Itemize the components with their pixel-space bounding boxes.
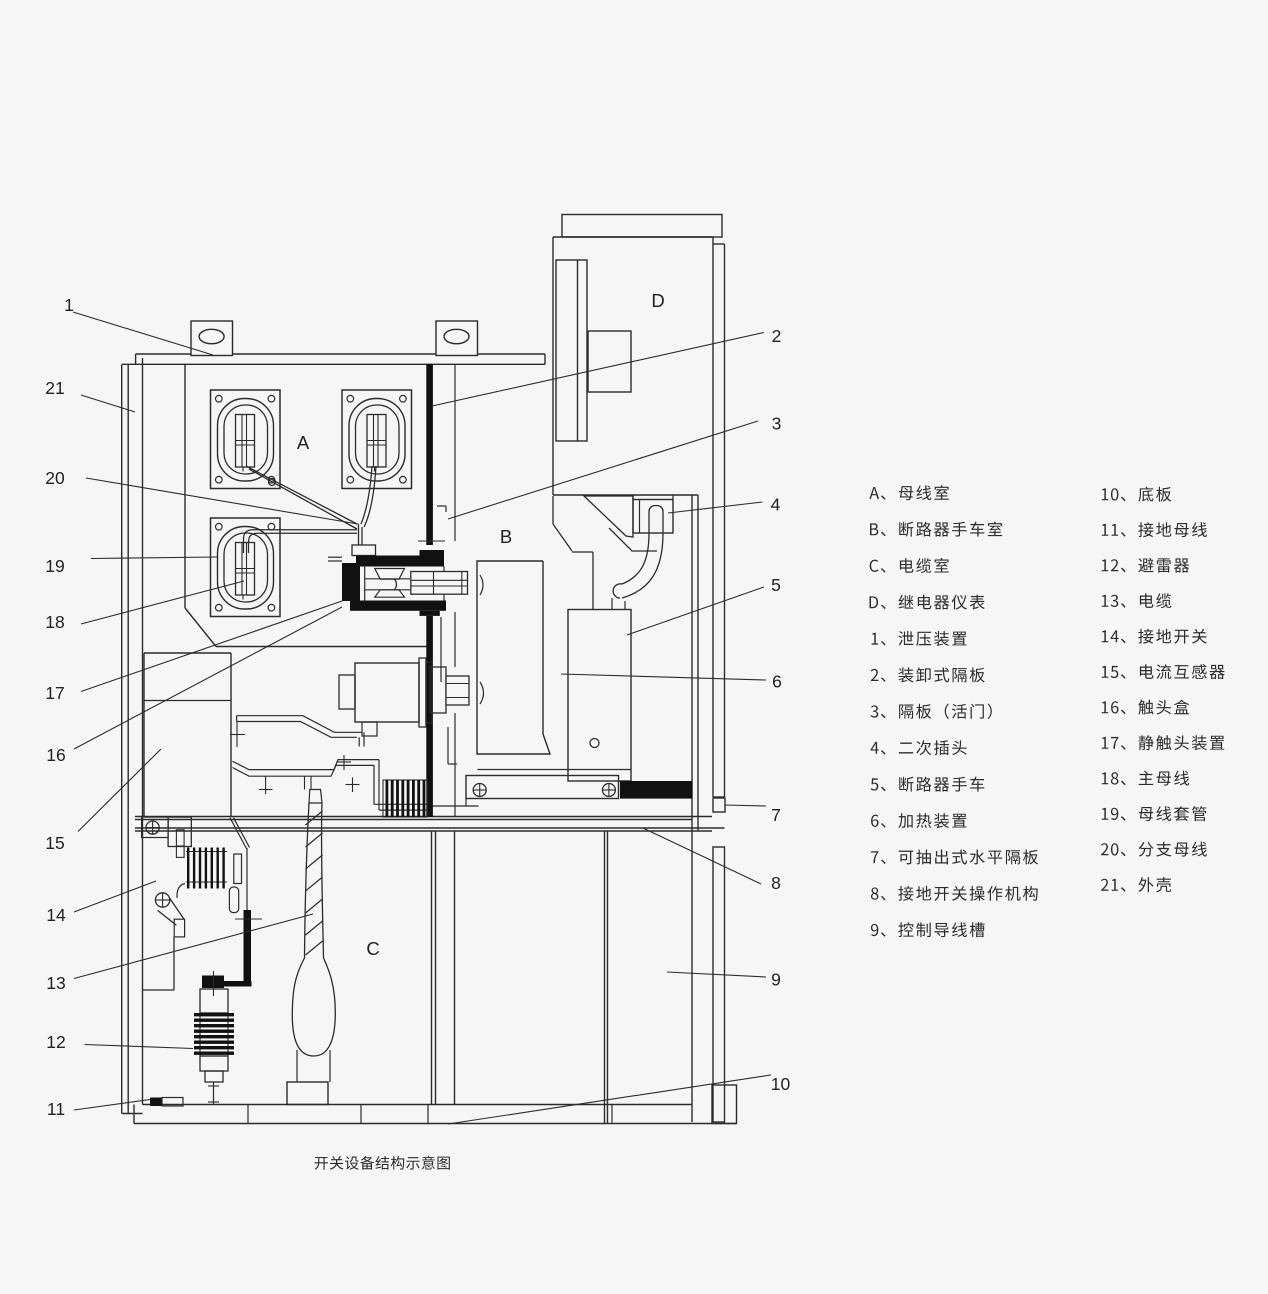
svg-text:2: 2 <box>772 326 782 346</box>
svg-text:10: 10 <box>771 1074 791 1094</box>
svg-text:5: 5 <box>771 575 781 595</box>
svg-text:9: 9 <box>771 970 781 990</box>
svg-text:1: 1 <box>64 295 74 315</box>
svg-text:18: 18 <box>45 612 64 632</box>
svg-text:14: 14 <box>46 905 66 925</box>
svg-text:19: 19 <box>45 556 64 576</box>
svg-text:B: B <box>500 526 512 547</box>
svg-text:3: 3 <box>772 414 782 434</box>
svg-text:20: 20 <box>45 468 65 488</box>
svg-text:7: 7 <box>771 805 781 825</box>
svg-text:13: 13 <box>46 973 65 993</box>
svg-text:A: A <box>297 432 310 453</box>
svg-text:4: 4 <box>771 495 781 515</box>
svg-text:C: C <box>366 938 379 959</box>
svg-text:12: 12 <box>46 1032 65 1052</box>
svg-text:D: D <box>651 290 664 311</box>
svg-text:6: 6 <box>772 672 782 692</box>
svg-text:15: 15 <box>45 833 64 853</box>
svg-text:8: 8 <box>771 873 781 893</box>
svg-text:17: 17 <box>45 683 64 703</box>
svg-text:21: 21 <box>45 378 64 398</box>
svg-text:16: 16 <box>46 745 65 765</box>
svg-text:11: 11 <box>47 1099 65 1119</box>
